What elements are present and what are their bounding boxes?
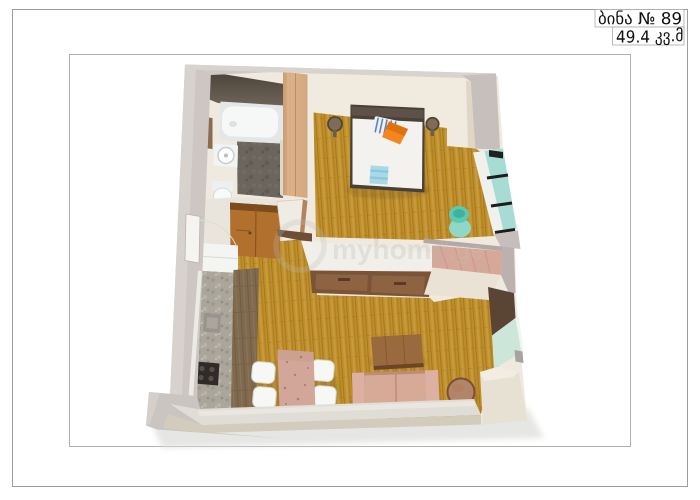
svg-text:myhome: myhome [332, 234, 447, 265]
svg-text:".ge: ".ge [440, 237, 484, 265]
